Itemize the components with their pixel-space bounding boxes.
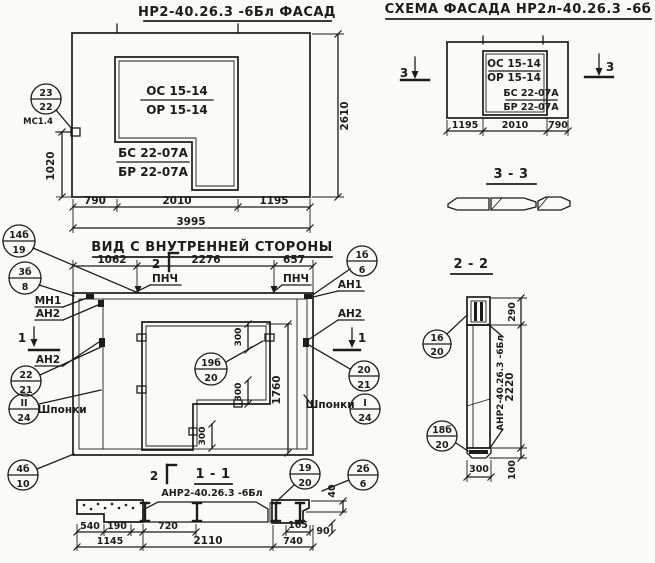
sec22-dim-2220: 2220 (504, 372, 516, 401)
facade-dim-1020: 1020 (45, 128, 80, 201)
drawing-sheet: НР2-40.26.3 -6Бл ФАСАД ОС 15-14 ОР 15-14… (0, 0, 655, 563)
sec22-dim-300: 300 (469, 464, 489, 475)
facade-dim-height: 2610 (312, 31, 351, 201)
sec22-callout-16-20: 16 20 (423, 316, 466, 358)
mn1-label: МН1 (35, 295, 62, 307)
schema-window-labels: ОС 15-14 ОР 15-14 БС 22-07А БР 22-07А (487, 58, 559, 113)
sec11-dim-90-text: 90 (316, 526, 330, 537)
facade-dim-3995: 3995 (176, 216, 205, 228)
inner-dim-1062: 1062 (97, 254, 126, 266)
callout-2b: 2б (356, 464, 370, 475)
facade-callout-23-22: 23 22 МС1.4 (23, 84, 72, 129)
sec11-dim-40-text: 40 (327, 484, 338, 498)
callout-20: 20 (357, 365, 371, 376)
sec11-dim-740: 740 (283, 536, 303, 547)
inner-dim-300-2: 300 (234, 377, 252, 408)
inner-dim-300a: 300 (234, 328, 244, 347)
inner-callout-20-21: 20 21 (309, 345, 379, 391)
section-1-1-title: 1 - 1 (195, 467, 230, 482)
facade-dims-bottom: 790 2010 1195 3995 (70, 195, 314, 233)
sec11-dim-720: 720 (158, 521, 178, 532)
inner-pnch-left: ПНЧ (135, 273, 182, 294)
inner-view-drawing: ВИД С ВНУТРЕННЕЙ СТОРОНЫ 1062 2276 657 2… (3, 225, 380, 491)
section-3-mark-left: 3 (400, 66, 408, 80)
callout-2b-bot: 6 (360, 479, 367, 490)
an2-label-top-left: АН2 (36, 308, 60, 320)
callout-19: 19 (298, 463, 311, 474)
section-3-3-title: 3 - 3 (493, 167, 528, 182)
facade-dim-2010: 2010 (162, 195, 191, 207)
sec11-profile (77, 500, 309, 523)
facade-dim-790: 790 (84, 195, 106, 207)
schema-section-mark-left: 3 (400, 57, 429, 80)
inner-section-mark-2-top: 2 (152, 253, 178, 271)
sec22-dim-290: 290 (507, 302, 518, 322)
callout-1b-bot: 6 (359, 265, 366, 276)
section-1-1: 2 1 - 1 АНР2-40.26.3 -6Бл 19 20 40 (74, 459, 348, 551)
sec11-dim-90: 90 (316, 520, 335, 538)
inner-edge-anchors (86, 294, 312, 347)
panel-drawing-svg: НР2-40.26.3 -6Бл ФАСАД ОС 15-14 ОР 15-14… (0, 0, 655, 563)
inner-callout-19b-20: 19б 20 (195, 341, 263, 385)
schema-title: СХЕМА ФАСАДА НР2л-40.26.3 -6б (385, 2, 652, 17)
an2-label-right: АН2 (338, 308, 362, 320)
callout-16-bot: 20 (430, 347, 444, 358)
schema-section-mark-right: 3 (585, 54, 614, 77)
section-2-mark-bottom: 2 (150, 469, 158, 483)
inner-dim-300c: 300 (198, 427, 208, 446)
facade-marker-label: МС1.4 (23, 117, 53, 127)
section-3-3-profile (448, 197, 570, 210)
schema-dim-790: 790 (548, 120, 568, 131)
facade-or-label: ОР 15-14 (146, 103, 208, 117)
callout-1b: 1б (355, 250, 369, 261)
an1-label: АН1 (338, 279, 362, 291)
callout-19b-bot: 20 (204, 373, 218, 384)
callout-3b: 3б (18, 267, 32, 278)
callout-18b-bot: 20 (435, 440, 449, 451)
callout-22: 22 (19, 370, 32, 381)
sec11-dim-40: 40 (306, 484, 347, 515)
callout-19-bot: 20 (298, 478, 312, 489)
section-2-2-title: 2 - 2 (453, 257, 488, 272)
facade-title: НР2-40.26.3 -6Бл ФАСАД (138, 5, 336, 20)
schema-br-label: БР 22-07А (503, 102, 559, 113)
callout-22: 22 (39, 102, 52, 113)
callout-18b: 18б (432, 425, 452, 436)
inner-callout-3b-8: 3б 8 (9, 262, 74, 296)
callout-II-bot: 24 (17, 413, 31, 424)
inner-dim-300-1: 300 (234, 321, 292, 354)
callout-16: 16 (430, 333, 444, 344)
section-2-mark-top: 2 (152, 257, 160, 271)
inner-dim-2276: 2276 (191, 254, 220, 266)
facade-dim-1195: 1195 (259, 195, 288, 207)
inner-section-mark-1-left: 1 (18, 327, 59, 350)
pnch-label-right: ПНЧ (283, 273, 309, 285)
inner-dim-1760-text: 1760 (271, 375, 283, 404)
callout-19b: 19б (201, 358, 221, 369)
callout-14b-bot: 19 (12, 245, 25, 256)
pnch-label-left: ПНЧ (152, 273, 178, 285)
schema-dims-bottom: 1195 2010 790 (444, 117, 572, 136)
inner-label-an1: АН1 (309, 279, 364, 298)
callout-20-bot: 21 (357, 380, 370, 391)
sec11-dim-540: 540 (80, 521, 100, 532)
inner-label-an2-top-left: АН2 (35, 305, 98, 320)
schema-dim-1195: 1195 (452, 120, 478, 131)
sec22-dim-100: 100 (507, 460, 518, 480)
callout-23: 23 (39, 88, 52, 99)
section-2-2: 2 - 2 АНР2-40.26.3 -6Бл 290 (423, 257, 527, 482)
facade-br-label: БР 22-07А (118, 165, 188, 179)
sec11-dim-190: 190 (107, 521, 127, 532)
inner-dim-657: 657 (283, 254, 305, 266)
facade-bs-label: БС 22-07А (118, 146, 189, 160)
facade-dim-2610: 2610 (339, 101, 351, 130)
sec11-dim-2110: 2110 (193, 535, 222, 547)
callout-4b: 4б (16, 464, 30, 475)
inner-dim-300b: 300 (234, 383, 244, 402)
facade-window-labels: ОС 15-14 ОР 15-14 БС 22-07А БР 22-07А (117, 84, 213, 179)
sec11-dims-bottom: 540 190 720 165 90 1145 2110 740 (74, 520, 336, 552)
schema-dim-2010: 2010 (502, 120, 529, 131)
sec22-callout-18b-20: 18б 20 (427, 421, 468, 451)
facade-drawing: НР2-40.26.3 -6Бл ФАСАД ОС 15-14 ОР 15-14… (23, 5, 351, 233)
callout-I-bot: 24 (358, 413, 372, 424)
facade-os-label: ОС 15-14 (146, 84, 208, 98)
sec11-dim-1145: 1145 (97, 536, 123, 547)
shponki-label-left: Шпонки (37, 404, 86, 416)
schema-bs-label: БС 22-07А (503, 88, 559, 99)
section-3-mark-right: 3 (606, 60, 614, 74)
inner-section-mark-2-bottom: 2 (150, 465, 176, 483)
section-1-1-subtitle: АНР2-40.26.3 -6Бл (161, 488, 262, 499)
section-1-mark-left: 1 (18, 331, 26, 345)
facade-dim-1020-text: 1020 (45, 151, 57, 180)
section-3-3: 3 - 3 (448, 167, 570, 210)
inner-dim-300-3: 300 (198, 421, 216, 452)
callout-4b-bot: 10 (16, 479, 30, 490)
callout-14b: 14б (9, 230, 29, 241)
inner-callout-I-24: Шпонки I 24 (304, 394, 380, 424)
an2-label-mid-left: АН2 (36, 354, 60, 366)
facade-title-underline (117, 21, 331, 33)
inner-callout-4b-10: 4б 10 (8, 454, 74, 490)
schema-drawing: СХЕМА ФАСАДА НР2л-40.26.3 -6б ОС 15-14 О… (385, 2, 652, 136)
inner-view-title: ВИД С ВНУТРЕННЕЙ СТОРОНЫ (91, 239, 332, 255)
schema-os-label: ОС 15-14 (487, 58, 541, 70)
schema-or-label: ОР 15-14 (487, 72, 541, 84)
section-1-mark-right: 1 (358, 331, 366, 345)
sec11-callout-19-20: 19 20 (277, 459, 320, 501)
inner-label-an2-right: АН2 (308, 308, 364, 340)
callout-II: II (20, 398, 27, 409)
callout-I: I (363, 398, 367, 409)
inner-section-mark-1-right: 1 (334, 328, 366, 350)
inner-pnch-right: ПНЧ (271, 273, 312, 294)
sec11-dim-165: 165 (288, 520, 308, 531)
sec11-anchor-marks (141, 503, 304, 521)
callout-3b-bot: 8 (22, 282, 29, 293)
